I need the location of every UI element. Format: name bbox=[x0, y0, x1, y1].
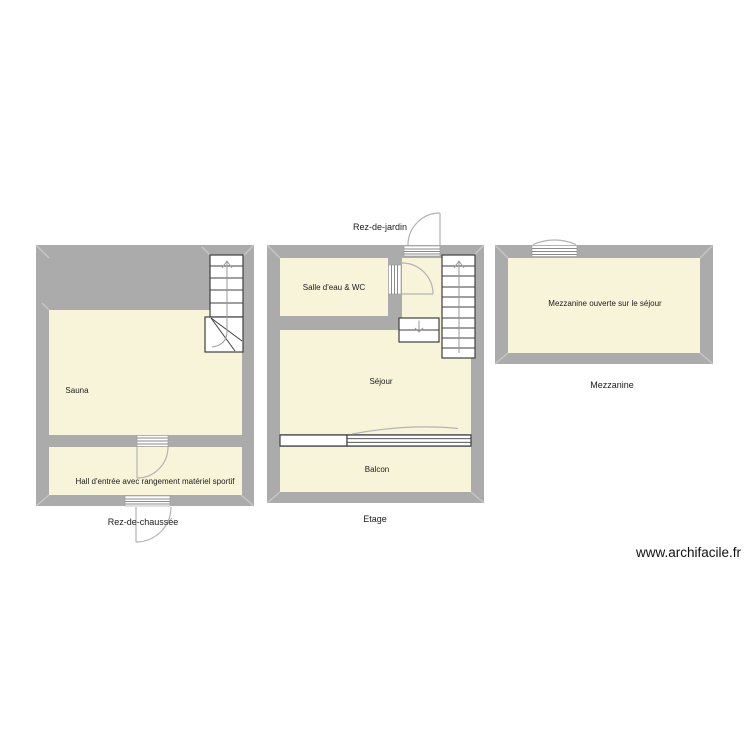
sink-icon[interactable] bbox=[399, 318, 439, 342]
floorplan-drawing: Sauna Hall d'entrée avec rangement matér… bbox=[0, 0, 750, 750]
label-salle-eau-wc: Salle d'eau & WC bbox=[303, 283, 366, 292]
label-sejour: Séjour bbox=[369, 377, 392, 386]
plan-mezzanine: Mezzanine ouverte sur le séjour Mezzanin… bbox=[495, 240, 713, 390]
stairs-icon-etage[interactable] bbox=[442, 255, 475, 358]
plan-rez-de-chaussee: Sauna Hall d'entrée avec rangement matér… bbox=[36, 245, 254, 542]
label-mezzanine-room: Mezzanine ouverte sur le séjour bbox=[548, 299, 662, 308]
label-rez-de-jardin: Rez-de-jardin bbox=[353, 222, 407, 232]
label-floor-etage: Etage bbox=[363, 514, 387, 524]
label-floor-rdc: Rez-de-chaussée bbox=[108, 517, 179, 527]
stairs-icon-rdc[interactable] bbox=[205, 255, 243, 352]
floorplan-page: Sauna Hall d'entrée avec rangement matér… bbox=[0, 0, 750, 750]
plan-etage: Salle d'eau & WC Séjour Balcon Rez-de-ja… bbox=[267, 213, 484, 524]
label-sauna: Sauna bbox=[65, 386, 89, 395]
door-icon-rez-de-jardin[interactable] bbox=[404, 213, 440, 256]
label-hall-entree: Hall d'entrée avec rangement matériel sp… bbox=[76, 477, 236, 486]
label-balcon: Balcon bbox=[365, 465, 389, 474]
watermark: www.archifacile.fr bbox=[635, 545, 742, 560]
label-floor-mezzanine: Mezzanine bbox=[590, 380, 634, 390]
window-icon-mezzanine[interactable] bbox=[532, 240, 577, 257]
room-hall-entree[interactable] bbox=[49, 447, 242, 495]
